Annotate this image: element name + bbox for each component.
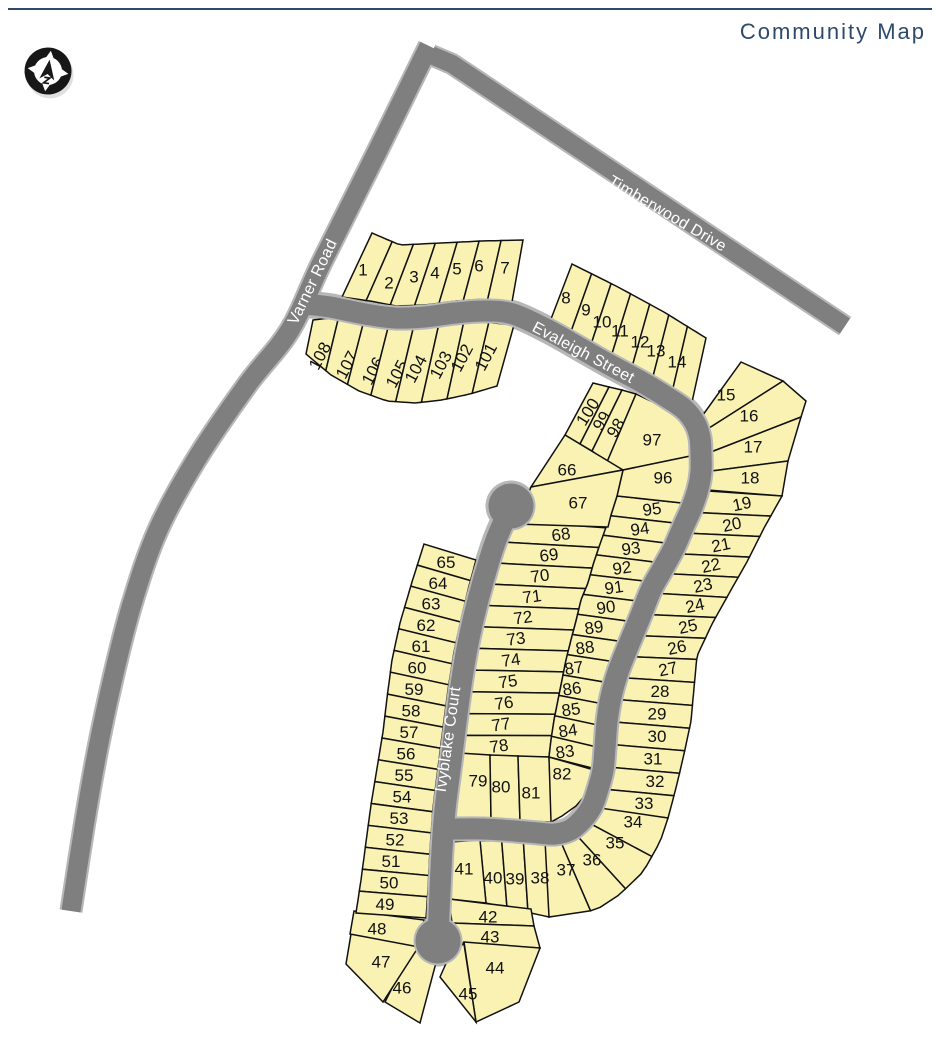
svg-text:28: 28 bbox=[651, 682, 670, 701]
svg-text:17: 17 bbox=[744, 438, 763, 457]
svg-text:5: 5 bbox=[452, 260, 461, 279]
svg-text:20: 20 bbox=[721, 513, 743, 536]
svg-text:62: 62 bbox=[417, 616, 436, 635]
svg-text:8: 8 bbox=[561, 289, 570, 308]
svg-text:97: 97 bbox=[643, 431, 662, 450]
svg-text:31: 31 bbox=[644, 750, 663, 769]
svg-text:57: 57 bbox=[400, 723, 419, 742]
svg-text:90: 90 bbox=[595, 597, 616, 618]
svg-text:14: 14 bbox=[668, 353, 687, 372]
svg-text:69: 69 bbox=[538, 545, 559, 566]
svg-text:74: 74 bbox=[500, 650, 521, 671]
svg-text:41: 41 bbox=[455, 860, 474, 879]
svg-text:58: 58 bbox=[402, 701, 421, 720]
svg-text:51: 51 bbox=[382, 852, 401, 871]
svg-text:54: 54 bbox=[393, 787, 412, 806]
svg-text:18: 18 bbox=[741, 469, 760, 488]
svg-text:23: 23 bbox=[692, 574, 714, 597]
svg-text:38: 38 bbox=[531, 869, 550, 888]
svg-text:7: 7 bbox=[500, 259, 509, 278]
svg-text:53: 53 bbox=[390, 809, 409, 828]
svg-text:79: 79 bbox=[469, 772, 488, 791]
svg-text:70: 70 bbox=[529, 565, 550, 586]
svg-text:49: 49 bbox=[376, 895, 395, 914]
svg-text:39: 39 bbox=[506, 870, 525, 889]
svg-text:1: 1 bbox=[358, 261, 367, 280]
svg-text:75: 75 bbox=[497, 671, 518, 692]
svg-text:72: 72 bbox=[512, 607, 533, 628]
svg-text:26: 26 bbox=[666, 636, 688, 659]
svg-text:92: 92 bbox=[611, 557, 632, 578]
svg-text:91: 91 bbox=[603, 577, 624, 598]
svg-text:9: 9 bbox=[581, 301, 590, 320]
svg-text:19: 19 bbox=[731, 493, 753, 516]
svg-text:29: 29 bbox=[648, 704, 667, 723]
svg-text:76: 76 bbox=[493, 692, 514, 713]
svg-text:36: 36 bbox=[583, 851, 602, 870]
svg-text:88: 88 bbox=[574, 637, 595, 658]
svg-text:16: 16 bbox=[740, 407, 759, 426]
svg-text:52: 52 bbox=[386, 830, 405, 849]
svg-text:66: 66 bbox=[558, 461, 577, 480]
svg-text:24: 24 bbox=[684, 595, 706, 618]
svg-text:6: 6 bbox=[474, 257, 483, 276]
svg-text:56: 56 bbox=[397, 744, 416, 763]
svg-text:60: 60 bbox=[408, 658, 427, 677]
svg-text:78: 78 bbox=[488, 735, 509, 756]
svg-text:94: 94 bbox=[629, 518, 650, 539]
svg-text:48: 48 bbox=[368, 920, 387, 939]
svg-text:30: 30 bbox=[648, 727, 667, 746]
svg-text:55: 55 bbox=[395, 766, 414, 785]
svg-text:27: 27 bbox=[657, 658, 679, 681]
svg-text:Community Map: Community Map bbox=[740, 19, 926, 44]
svg-text:65: 65 bbox=[437, 553, 456, 572]
svg-text:13: 13 bbox=[647, 342, 666, 361]
svg-text:80: 80 bbox=[492, 778, 511, 797]
svg-text:2: 2 bbox=[384, 274, 393, 293]
svg-text:37: 37 bbox=[557, 861, 576, 880]
svg-text:3: 3 bbox=[409, 268, 418, 287]
svg-text:83: 83 bbox=[554, 741, 575, 762]
svg-text:67: 67 bbox=[569, 494, 588, 513]
svg-text:71: 71 bbox=[521, 586, 542, 607]
svg-text:35: 35 bbox=[606, 834, 625, 853]
svg-text:89: 89 bbox=[583, 617, 604, 638]
svg-text:96: 96 bbox=[654, 469, 673, 488]
svg-text:40: 40 bbox=[484, 869, 503, 888]
svg-text:21: 21 bbox=[710, 534, 732, 557]
svg-text:50: 50 bbox=[380, 874, 399, 893]
svg-text:15: 15 bbox=[717, 386, 736, 405]
svg-text:4: 4 bbox=[430, 264, 439, 283]
svg-text:32: 32 bbox=[646, 772, 665, 791]
svg-text:68: 68 bbox=[550, 524, 571, 545]
svg-text:45: 45 bbox=[459, 985, 478, 1004]
svg-text:73: 73 bbox=[505, 628, 526, 649]
svg-text:63: 63 bbox=[422, 595, 441, 614]
svg-text:59: 59 bbox=[405, 680, 424, 699]
svg-text:82: 82 bbox=[553, 765, 572, 784]
svg-text:95: 95 bbox=[641, 499, 662, 520]
svg-text:61: 61 bbox=[412, 637, 431, 656]
svg-text:47: 47 bbox=[372, 953, 391, 972]
svg-text:22: 22 bbox=[700, 554, 722, 577]
svg-text:64: 64 bbox=[429, 574, 448, 593]
svg-text:81: 81 bbox=[522, 784, 541, 803]
svg-text:11: 11 bbox=[611, 322, 629, 341]
svg-text:34: 34 bbox=[624, 813, 643, 832]
svg-text:93: 93 bbox=[620, 538, 641, 559]
svg-text:77: 77 bbox=[490, 714, 511, 735]
svg-text:25: 25 bbox=[677, 615, 699, 638]
svg-text:10: 10 bbox=[593, 313, 612, 332]
svg-text:44: 44 bbox=[486, 959, 505, 978]
svg-text:33: 33 bbox=[635, 794, 654, 813]
